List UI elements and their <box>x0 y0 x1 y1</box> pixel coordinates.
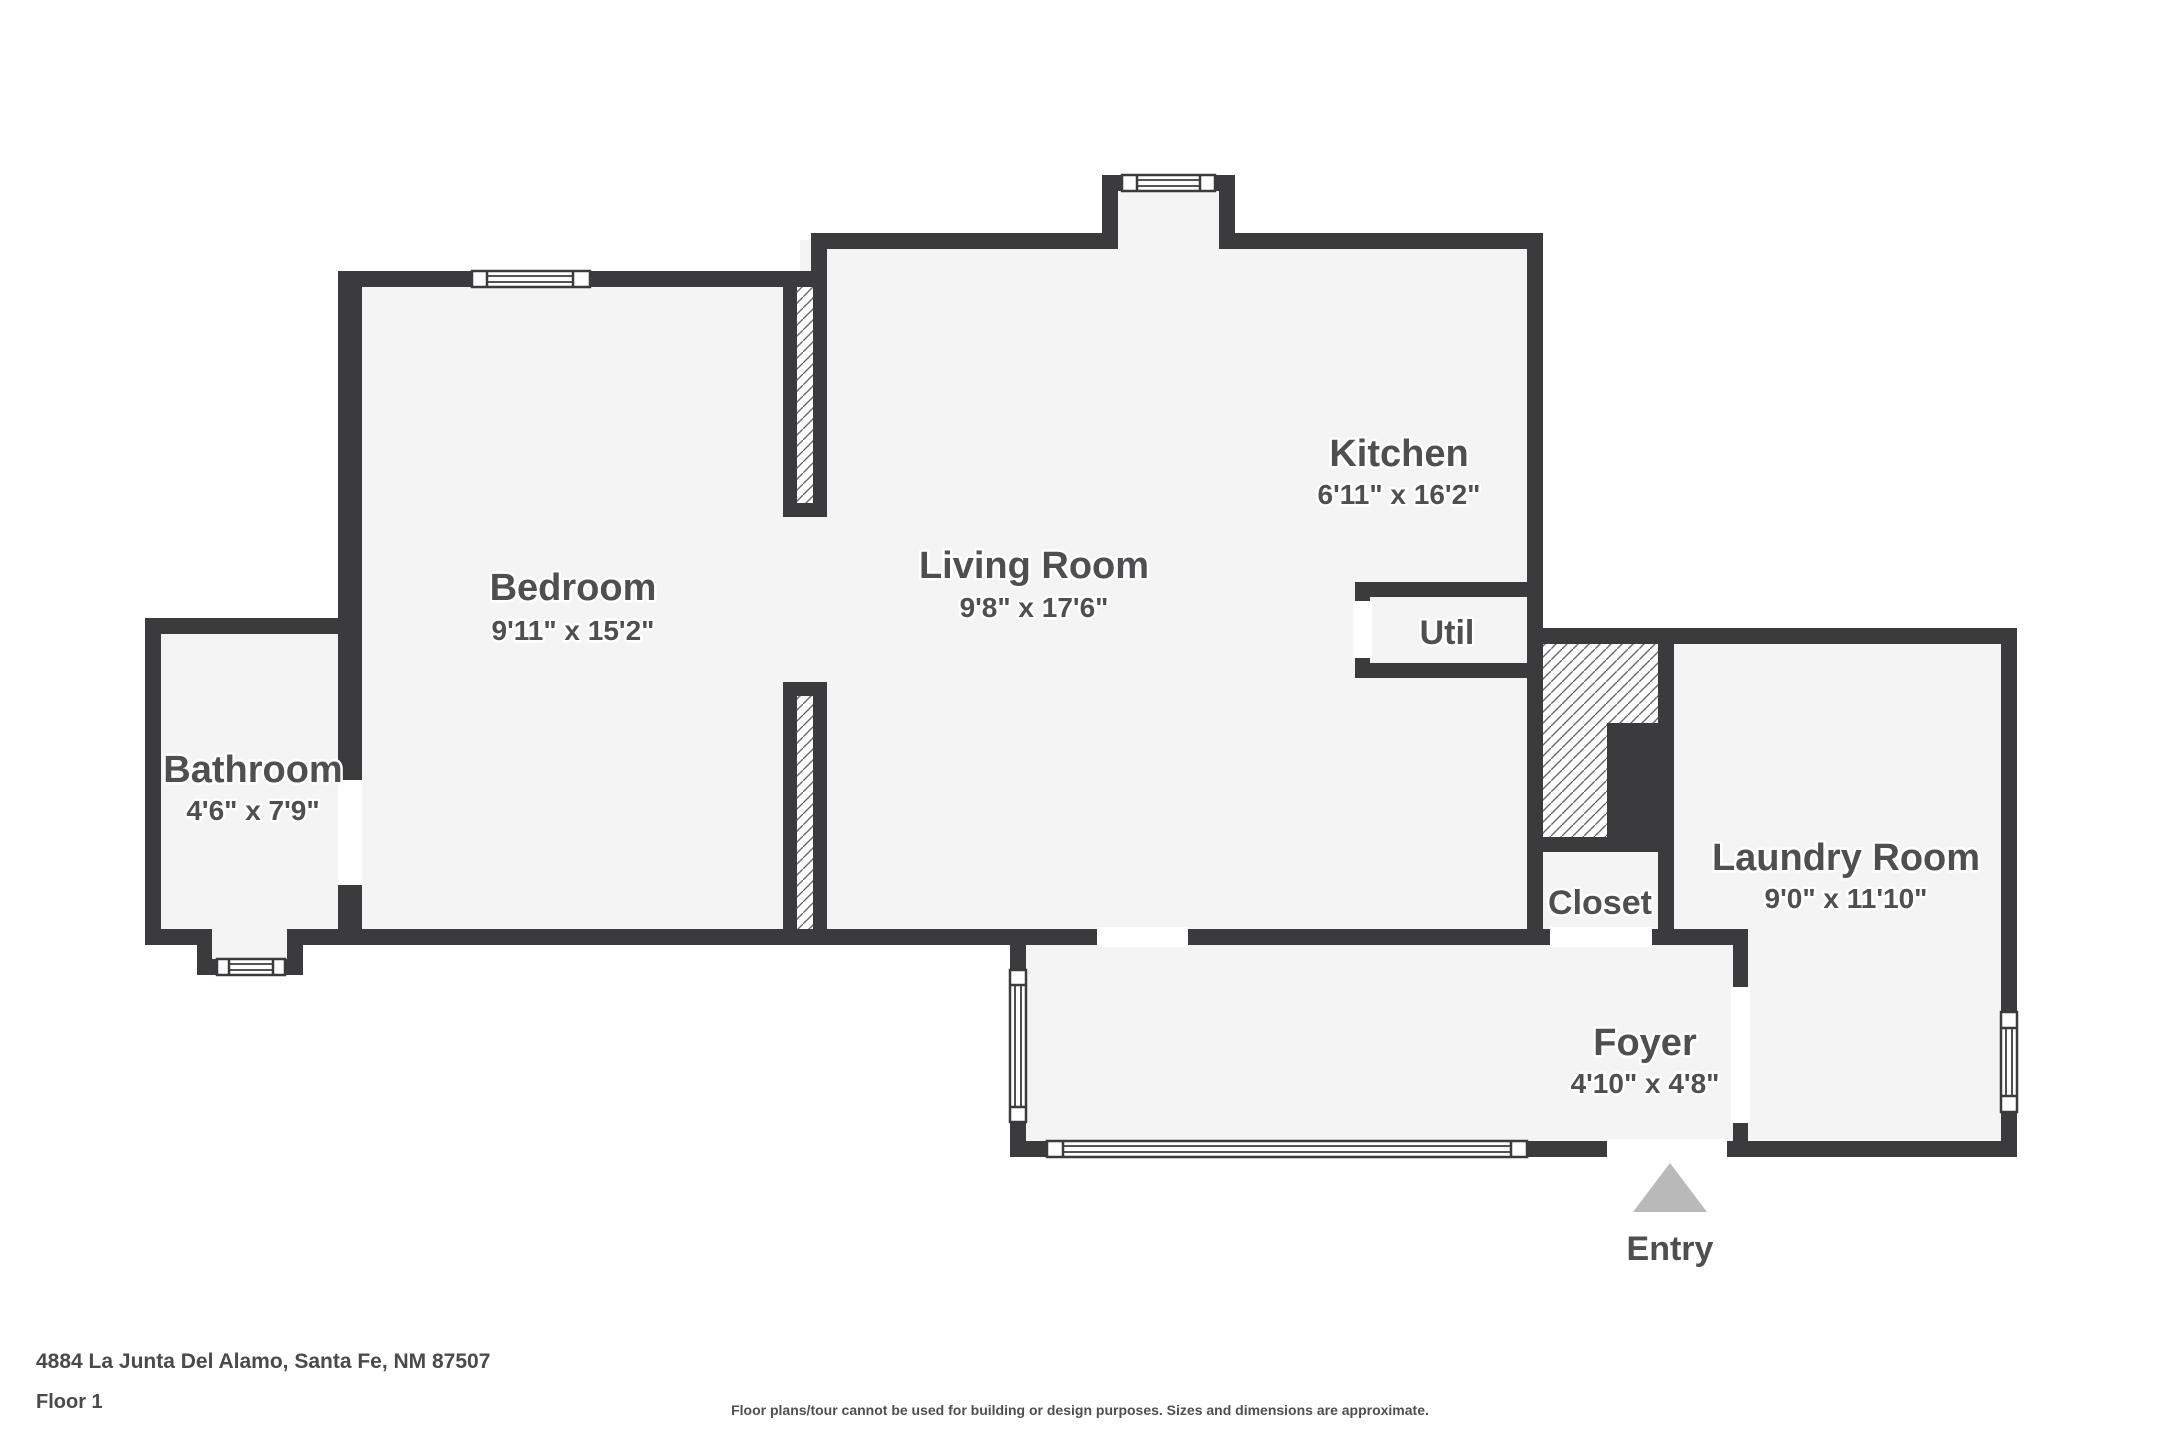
living-room-label: Living Room <box>919 545 1149 587</box>
entry-door-opening <box>1607 1139 1727 1159</box>
foyer-window <box>1010 970 1026 1122</box>
entry-label: Entry <box>1627 1230 1714 1268</box>
floor-plan: Bedroom 9'11" x 15'2" Living Room 9'8" x… <box>0 0 2160 1440</box>
util-label: Util <box>1420 614 1475 652</box>
divider-hatch-upper <box>797 287 813 503</box>
block-hatch-lower <box>1543 644 1607 837</box>
bedroom-label: Bedroom <box>490 567 657 609</box>
laundry-window <box>2001 1012 2017 1112</box>
living-foyer-opening <box>1097 927 1188 947</box>
laundry-room-label: Laundry Room <box>1712 837 1980 879</box>
address-text: 4884 La Junta Del Alamo, Santa Fe, NM 87… <box>36 1350 490 1374</box>
living-top-wall-connector <box>811 233 827 287</box>
util-door-opening <box>1353 601 1372 658</box>
closet-right-wall <box>1658 837 1674 945</box>
kitchen-dims: 6'11" x 16'2" <box>1318 479 1481 510</box>
bathroom-label: Bathroom <box>163 749 342 791</box>
bathroom-top-wall <box>145 618 362 634</box>
entry-arrow <box>1633 1163 1707 1212</box>
laundry-top-wall <box>1527 628 2017 644</box>
bathroom-dims: 4'6" x 7'9" <box>186 795 319 826</box>
bedroom-dims: 9'11" x 15'2" <box>492 615 655 646</box>
divider-hatch-lower <box>797 696 813 929</box>
kitchen-bay-window <box>1122 175 1215 191</box>
living-room-dims: 9'8" x 17'6" <box>960 592 1109 623</box>
bathroom-door-opening <box>338 780 362 885</box>
block-hatch-upper <box>1607 644 1658 723</box>
closet-door-opening <box>1550 927 1652 947</box>
bedroom-window <box>472 271 590 287</box>
kitchen-top-wall <box>1219 233 1543 249</box>
disclaimer-text: Floor plans/tour cannot be used for buil… <box>0 1402 2160 1418</box>
living-top-wall-left <box>811 233 1118 249</box>
porch-window <box>1047 1141 1527 1157</box>
foyer-laundry-door-opening <box>1731 987 1750 1123</box>
bathroom-bay-floor-inner <box>212 929 287 959</box>
bathroom-left-wall <box>145 618 161 945</box>
foyer-label: Foyer <box>1593 1022 1697 1064</box>
kitchen-label: Kitchen <box>1329 433 1468 475</box>
foyer-dims: 4'10" x 4'8" <box>1571 1068 1720 1099</box>
bathroom-window <box>217 959 285 975</box>
closet-label: Closet <box>1548 884 1652 922</box>
laundry-room-dims: 9'0" x 11'10" <box>1765 883 1928 914</box>
